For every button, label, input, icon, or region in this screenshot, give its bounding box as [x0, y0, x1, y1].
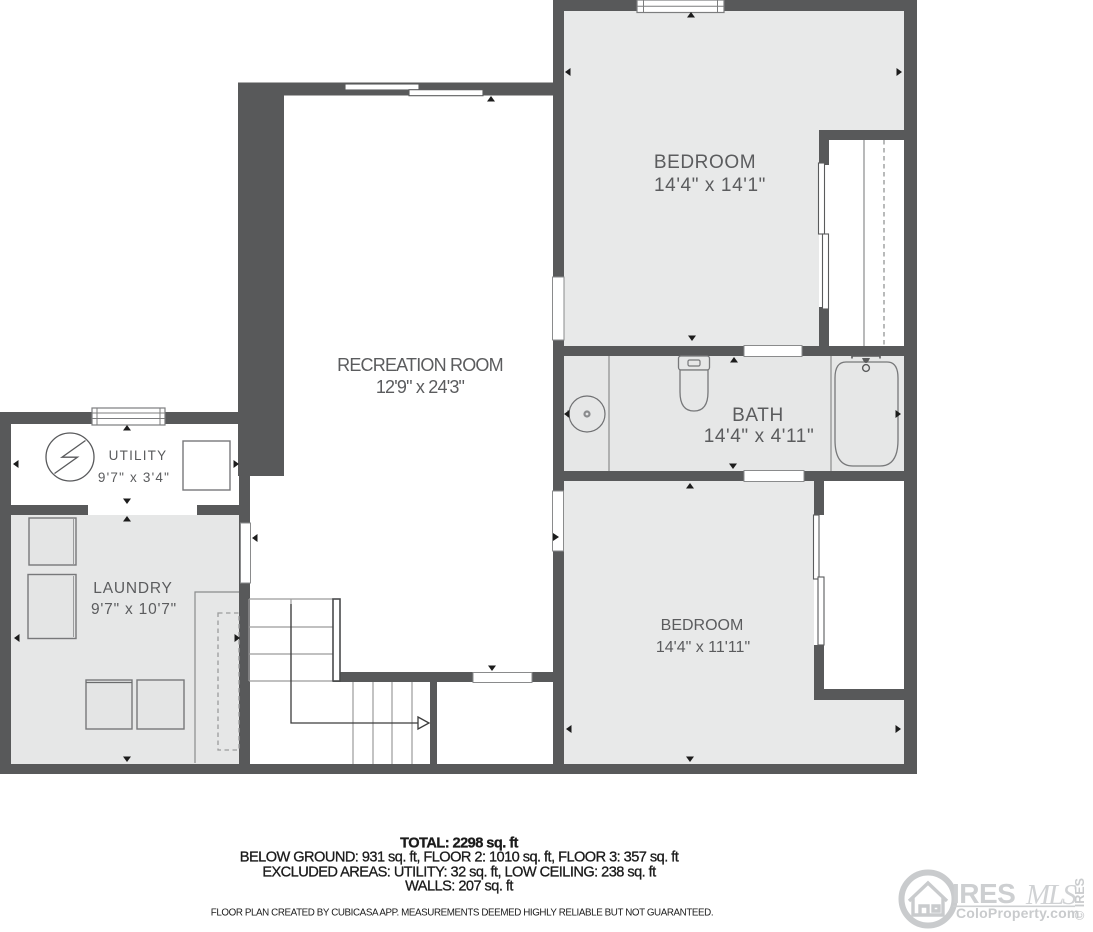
svg-text:9'7" x 10'7": 9'7" x 10'7" [91, 601, 177, 618]
svg-text:14'4" x 4'11": 14'4" x 4'11" [704, 426, 815, 447]
svg-text:BATH: BATH [732, 405, 784, 426]
svg-text:12'9" x 24'3": 12'9" x 24'3" [376, 377, 465, 397]
svg-text:14'4" x 14'1": 14'4" x 14'1" [654, 175, 766, 196]
svg-text:LAUNDRY: LAUNDRY [93, 580, 172, 597]
svg-text:UTILITY: UTILITY [109, 448, 168, 463]
svg-text:RECREATION ROOM: RECREATION ROOM [337, 355, 503, 375]
svg-text:BEDROOM: BEDROOM [661, 617, 744, 634]
svg-text:© IRES: © IRES [1073, 878, 1087, 920]
svg-text:14'4" x 11'11": 14'4" x 11'11" [656, 639, 750, 656]
svg-text:WALLS: 207 sq. ft: WALLS: 207 sq. ft [405, 879, 513, 895]
svg-text:BELOW GROUND: 931 sq. ft, FLOO: BELOW GROUND: 931 sq. ft, FLOOR 2: 1010 … [240, 850, 679, 866]
svg-text:FLOOR PLAN CREATED BY CUBICASA: FLOOR PLAN CREATED BY CUBICASA APP. MEAS… [211, 908, 713, 919]
svg-text:BEDROOM: BEDROOM [654, 152, 756, 173]
svg-text:ColoProperty.com: ColoProperty.com [956, 905, 1080, 921]
svg-text:9'7" x 3'4": 9'7" x 3'4" [98, 470, 170, 485]
